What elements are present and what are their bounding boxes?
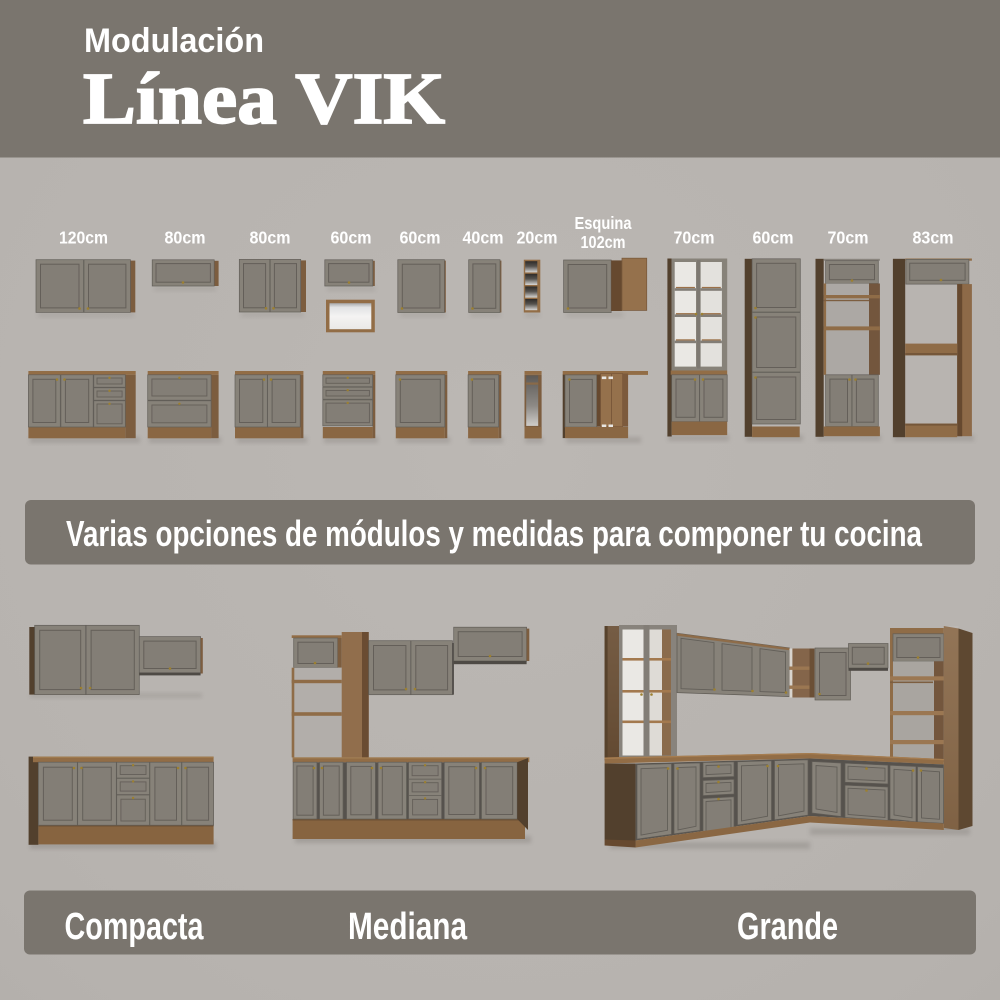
svg-text:Grande: Grande: [737, 906, 838, 948]
svg-text:40cm: 40cm: [463, 228, 504, 248]
svg-text:83cm: 83cm: [913, 228, 954, 248]
svg-text:60cm: 60cm: [400, 228, 441, 248]
svg-text:Modulación: Modulación: [84, 22, 264, 60]
svg-text:70cm: 70cm: [828, 228, 869, 248]
svg-text:102cm: 102cm: [581, 232, 626, 252]
svg-text:20cm: 20cm: [517, 228, 558, 248]
svg-text:Mediana: Mediana: [348, 906, 468, 948]
svg-text:70cm: 70cm: [674, 228, 715, 248]
svg-text:60cm: 60cm: [331, 228, 372, 248]
svg-text:80cm: 80cm: [250, 228, 291, 248]
svg-text:Compacta: Compacta: [65, 906, 205, 948]
svg-text:60cm: 60cm: [753, 228, 794, 248]
svg-text:Esquina: Esquina: [575, 213, 632, 233]
svg-text:80cm: 80cm: [165, 228, 206, 248]
svg-text:Varias opciones de módulos y m: Varias opciones de módulos y medidas par…: [66, 513, 923, 554]
svg-text:Línea VIK: Línea VIK: [83, 58, 445, 139]
svg-text:120cm: 120cm: [59, 228, 108, 248]
